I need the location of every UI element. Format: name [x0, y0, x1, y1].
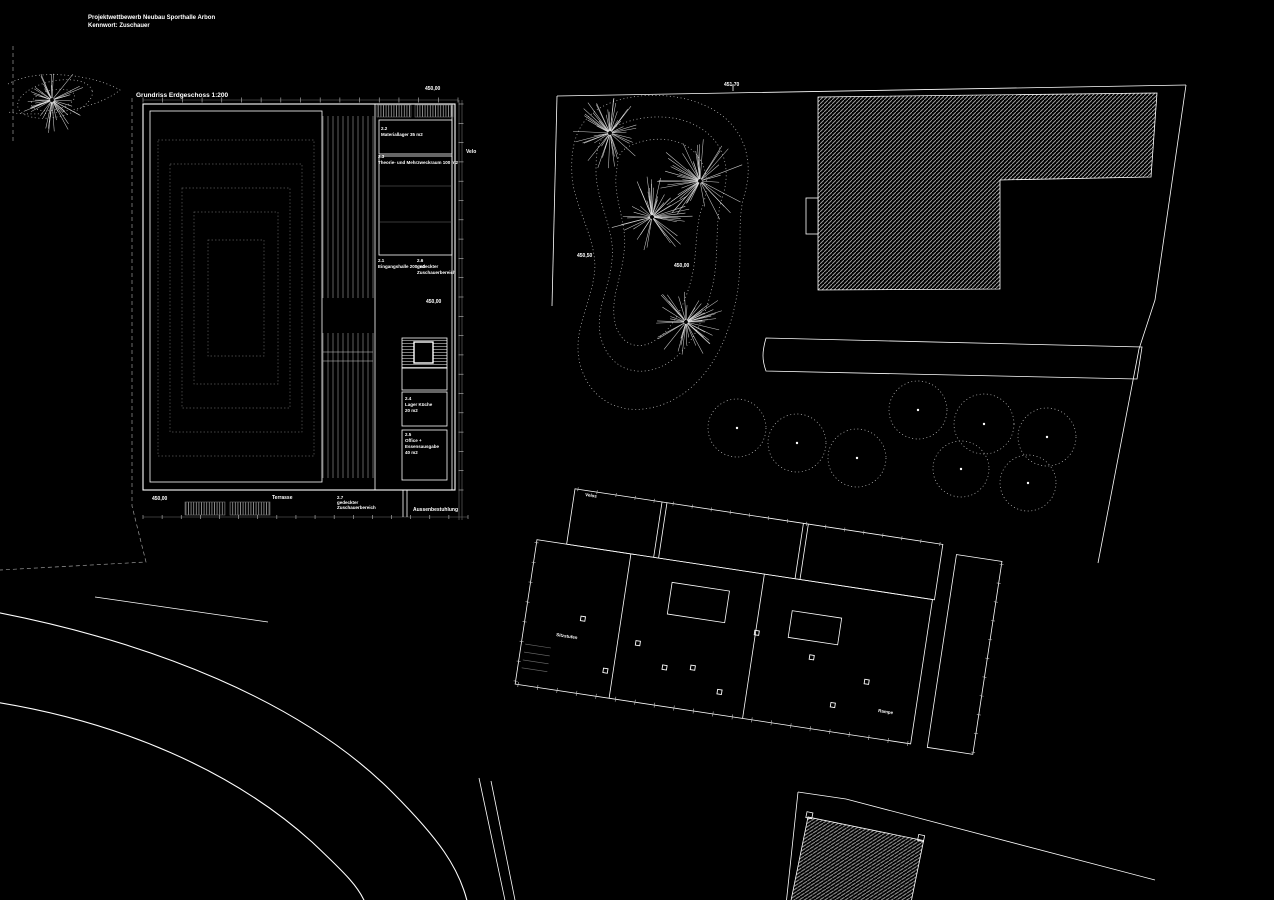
column — [603, 668, 608, 673]
new-building-plan — [513, 482, 1006, 756]
labels-layer: Projektwettbewerb Neubau Sporthalle Arbo… — [88, 15, 894, 715]
wall — [743, 574, 765, 718]
room-22-nr: 2.2 — [381, 126, 388, 131]
room-23-nr: 2.3 — [378, 154, 385, 159]
room-21-nr: 2.1 — [378, 258, 385, 263]
wall — [659, 503, 667, 558]
velos-label: Velos — [585, 492, 598, 499]
title-line1: Projektwettbewerb Neubau Sporthalle Arbo… — [88, 15, 215, 21]
planned-trees-layer — [708, 381, 1076, 511]
column — [690, 665, 695, 670]
site-plan-drawing: Projektwettbewerb Neubau Sporthalle Arbo… — [0, 0, 1274, 900]
drawing-sheet: Projektwettbewerb Neubau Sporthalle Arbo… — [0, 0, 1274, 900]
small-existing-building — [787, 812, 925, 900]
road-edge — [95, 597, 268, 622]
column — [635, 641, 640, 646]
column — [662, 665, 667, 670]
tree-center-dot — [796, 442, 798, 444]
court-marking — [208, 240, 264, 356]
wall — [800, 524, 808, 579]
aussenbestuhlung-label: Aussenbestuhlung — [413, 507, 458, 513]
elev-plan-top: 450,00 — [425, 86, 441, 92]
path-wedge — [479, 778, 516, 900]
elev-site-top: 451,70 — [724, 82, 740, 88]
terrain-contour — [572, 95, 749, 409]
tree-center-dot — [1046, 436, 1048, 438]
tree — [656, 292, 722, 355]
room-theorieraum — [379, 156, 452, 255]
outdoor-steps — [185, 502, 225, 515]
terrain-contour — [614, 139, 707, 345]
tree — [612, 177, 693, 250]
courtyard — [788, 611, 841, 645]
tree — [657, 139, 742, 219]
elev-site-1: 450,50 — [577, 253, 593, 259]
court-marking — [194, 212, 278, 384]
plan-title: Grundriss Erdgeschoss 1:200 — [136, 92, 229, 99]
terrasse-label: Terrasse — [272, 495, 293, 501]
room-materiallager — [379, 120, 452, 154]
room-24-name2: 20 m2 — [405, 408, 418, 413]
elev-plan-mid: 450,00 — [426, 299, 442, 305]
sports-hall — [150, 111, 322, 482]
room-26-name2: Zuschauerbereich — [417, 270, 456, 275]
grille-hatch — [415, 105, 453, 117]
grille-hatch — [377, 105, 411, 117]
elev-plan-bottom: 450,00 — [152, 496, 168, 502]
room-23-name: Theorie- und Mehrzweckraum 100 m2 — [378, 160, 459, 165]
access-road — [763, 338, 1142, 379]
room-24-name1: Lager Küche — [405, 402, 433, 407]
elevator-shaft — [414, 342, 433, 363]
column — [864, 679, 869, 684]
road-edge — [0, 612, 468, 900]
existing-building — [818, 93, 1157, 290]
wall — [609, 554, 631, 698]
column — [754, 630, 759, 635]
main-wing — [515, 540, 932, 744]
tree-center-dot — [856, 457, 858, 459]
outdoor-steps — [230, 502, 270, 515]
wall — [795, 523, 803, 578]
rampe-label: Rampe — [878, 708, 894, 715]
service-room — [402, 368, 447, 390]
tree-center-dot — [1027, 482, 1029, 484]
tree-center-dot — [960, 468, 962, 470]
building-entrance-notch — [806, 198, 818, 234]
floor-plan — [0, 46, 468, 570]
road-edge — [0, 702, 366, 900]
room-26-nr: 2.6 — [417, 258, 424, 263]
room-22-name: Materiallager 35 m2 — [381, 132, 423, 137]
court-marking — [158, 140, 314, 456]
column — [830, 702, 835, 707]
upper-wing — [567, 489, 943, 600]
wall — [654, 502, 662, 557]
court-marking — [170, 164, 302, 432]
courtyard — [667, 582, 729, 622]
velo-label: Velo — [466, 149, 476, 155]
tree-center-dot — [736, 427, 738, 429]
site-plan — [0, 73, 1186, 900]
room-25-nr: 2.5 — [405, 432, 412, 437]
column — [717, 689, 722, 694]
room-25-name2: Essensausgabe — [405, 444, 440, 449]
court-marking — [182, 188, 290, 408]
tree — [24, 74, 83, 133]
room-25-name3: 40 m2 — [405, 450, 418, 455]
room-24-nr: 2.4 — [405, 396, 412, 401]
elev-site-2: 450,00 — [674, 263, 690, 269]
tree-center-dot — [983, 423, 985, 425]
tree-center-dot — [917, 409, 919, 411]
column — [580, 616, 585, 621]
title-line2: Kennwort: Zuschauer — [88, 23, 150, 29]
room-27-name2: Zuschauerbereich — [337, 505, 376, 510]
sitzstufen-label: Sitzstufen — [556, 632, 578, 640]
detached-wing — [927, 555, 1002, 755]
tree — [573, 98, 636, 168]
column — [809, 655, 814, 660]
small-building-hatch — [789, 817, 924, 900]
road-arcs — [0, 597, 516, 900]
terrain-contour — [596, 117, 726, 371]
seating-steps — [522, 644, 551, 672]
parcel-boundary-dashed — [0, 98, 146, 570]
room-26-name1: gedeckter — [417, 264, 439, 269]
site-boundary — [552, 96, 557, 306]
room-25-name1: Office + — [405, 438, 422, 443]
